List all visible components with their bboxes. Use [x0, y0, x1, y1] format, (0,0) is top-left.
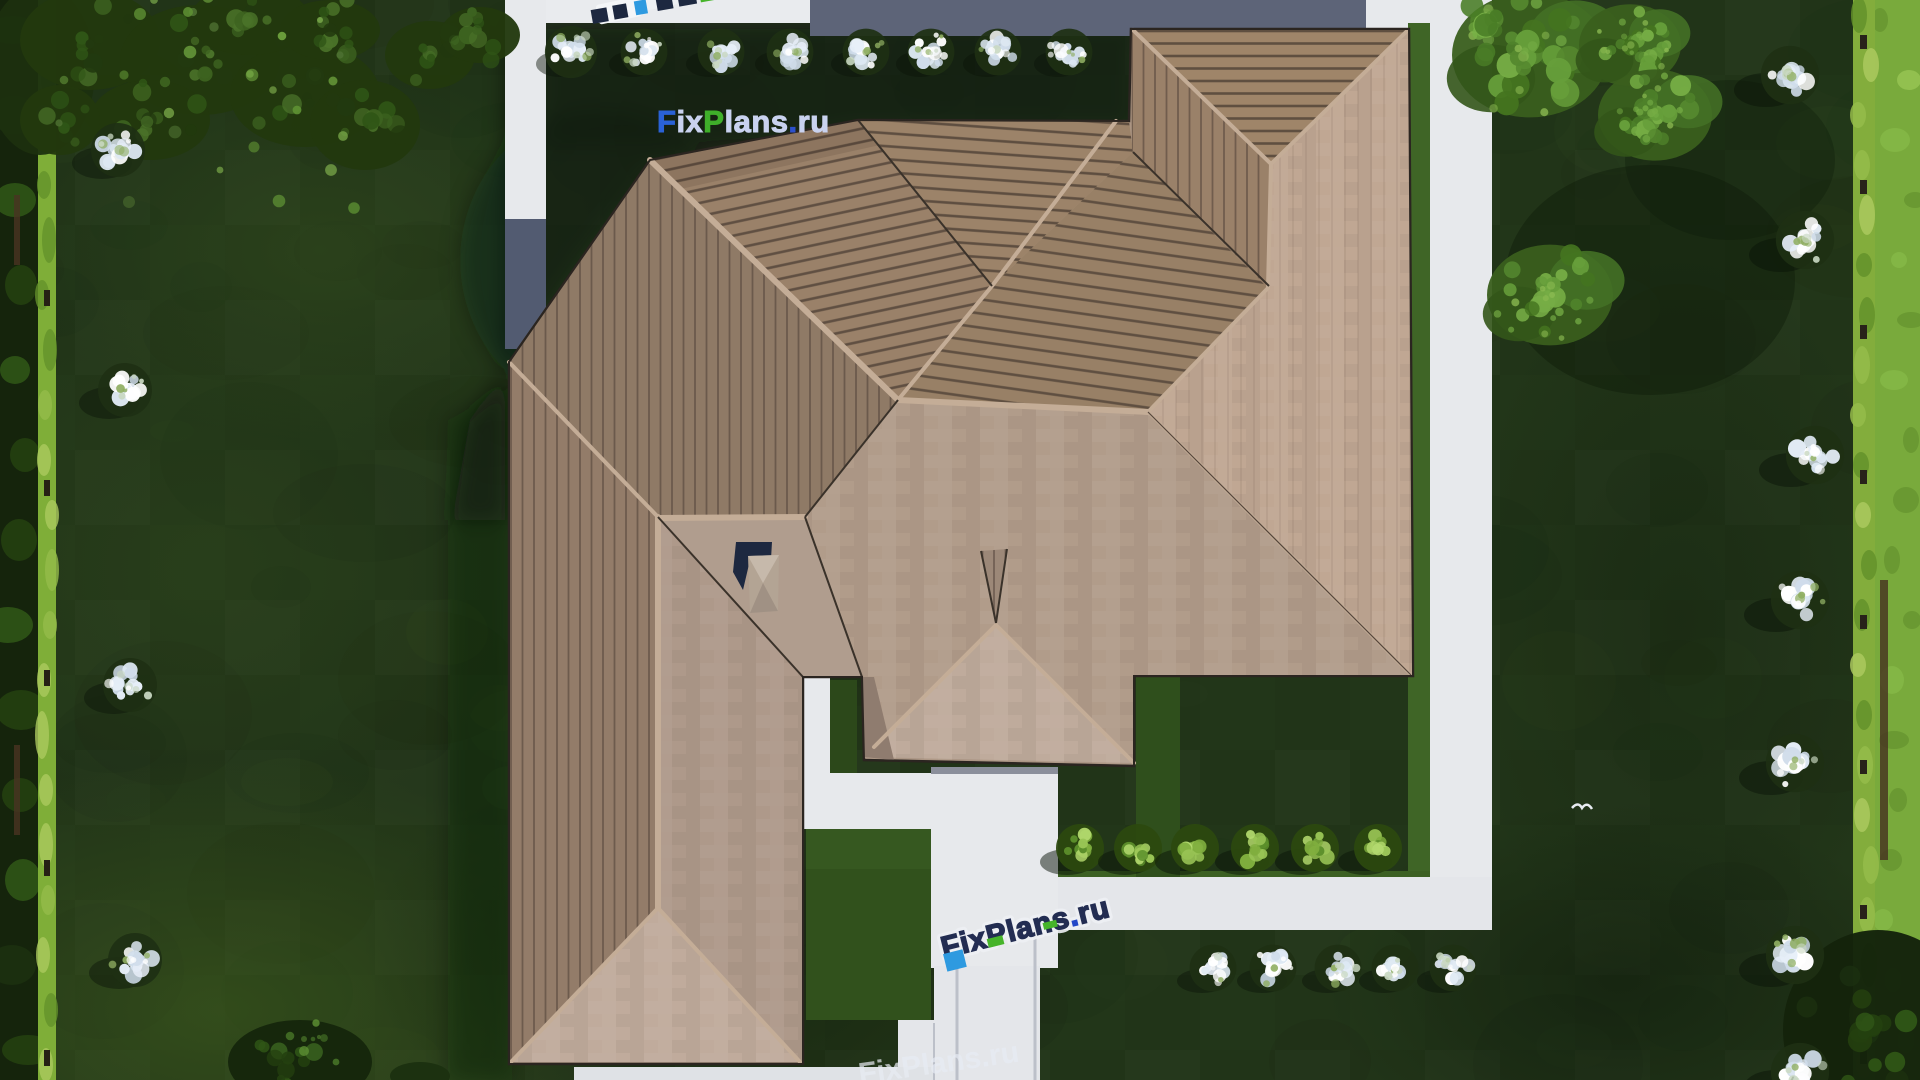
svg-text:FixPlans.ru: FixPlans.ru	[657, 104, 830, 139]
